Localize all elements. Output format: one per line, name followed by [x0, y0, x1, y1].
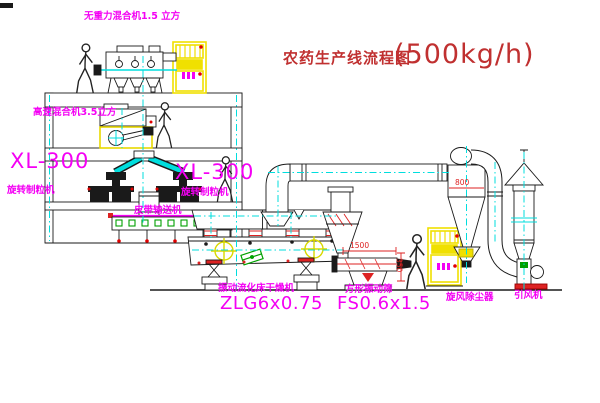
label-gravity-free-mixer: 无重力混合机1.5 立方 — [84, 12, 180, 22]
label-granulator-right-name: 旋转制粒机 — [181, 188, 229, 198]
control-cabinet-2 — [426, 228, 463, 286]
person-figure — [156, 103, 171, 148]
label-granulator-left-name: 旋转制粒机 — [7, 186, 55, 196]
granulator-left — [88, 172, 135, 202]
control-cabinet-1 — [173, 42, 206, 93]
flow-diagram-canvas: 农药生产线流程图 (500kg/h) 无重力混合机1.5 立方 高速混合机3.5… — [0, 0, 600, 403]
label-induced-draft-fan: 引风机 — [514, 291, 543, 301]
cabinet2-knobs — [437, 263, 450, 270]
person-figure — [77, 44, 94, 93]
label-granulator-left-model: XL-300 — [10, 151, 89, 172]
induced-draft-fan — [512, 259, 550, 290]
gravity-free-mixer — [94, 46, 177, 93]
cyclone-outlet-flange — [451, 148, 472, 165]
label-cyclone: 旋风除尘器 — [446, 293, 494, 303]
page-title: 农药生产线流程图 — [283, 51, 411, 66]
label-belt-conveyor: 皮带输送机 — [134, 206, 182, 216]
mixer-discharge-cones — [114, 78, 160, 92]
dimension-screen-outlet: 350 — [395, 258, 403, 272]
label-granulator-right-model: XL-300 — [175, 162, 254, 183]
label-screen-model: FS0.6x1.5 — [337, 295, 431, 313]
dryer-spring-mount-right — [294, 258, 319, 290]
label-high-speed-mixer: 高速混合机3.5立方 — [33, 108, 116, 118]
corner-mark — [0, 3, 13, 8]
cabinet1-knobs — [182, 72, 195, 79]
label-dryer-model: ZLG6x0.75 — [220, 295, 323, 313]
page-title-capacity: (500kg/h) — [394, 41, 535, 68]
dimension-cyclone-body: 800 — [455, 179, 469, 187]
vibrating-screen — [323, 187, 411, 290]
dimension-screen-length: 1500 — [350, 242, 369, 250]
